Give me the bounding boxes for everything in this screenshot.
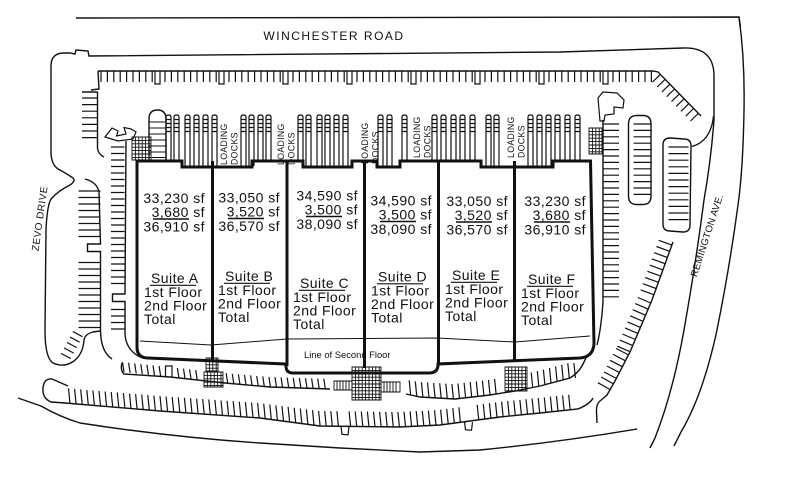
svg-text:LOADING: LOADING xyxy=(412,116,422,158)
svg-text:36,570 sf: 36,570 sf xyxy=(218,218,280,234)
svg-text:DOCKS: DOCKS xyxy=(371,131,381,164)
svg-text:Total: Total xyxy=(218,309,250,325)
svg-text:DOCKS: DOCKS xyxy=(287,132,297,165)
svg-text:Total: Total xyxy=(293,316,325,332)
svg-text:LOADING: LOADING xyxy=(276,123,286,165)
svg-text:DOCKS: DOCKS xyxy=(517,125,527,158)
svg-text:DOCKS: DOCKS xyxy=(230,132,240,165)
svg-text:WINCHESTER ROAD: WINCHESTER ROAD xyxy=(263,29,404,43)
svg-text:Total: Total xyxy=(521,312,553,328)
svg-text:38,090 sf: 38,090 sf xyxy=(296,216,358,232)
svg-text:REMINGTON AVE.: REMINGTON AVE. xyxy=(689,193,726,278)
svg-text:Total: Total xyxy=(371,310,403,326)
svg-text:36,910 sf: 36,910 sf xyxy=(524,221,586,237)
svg-text:LOADING: LOADING xyxy=(506,116,516,158)
svg-text:36,910 sf: 36,910 sf xyxy=(143,218,205,234)
svg-text:Line of Second Floor: Line of Second Floor xyxy=(304,349,391,360)
svg-text:LOADING: LOADING xyxy=(360,122,370,164)
svg-text:Total: Total xyxy=(445,308,477,324)
svg-text:38,090 sf: 38,090 sf xyxy=(370,221,432,237)
svg-text:ZEVO DRIVE: ZEVO DRIVE xyxy=(31,185,51,251)
svg-text:Total: Total xyxy=(144,311,176,327)
svg-text:LOADING: LOADING xyxy=(219,123,229,165)
svg-text:DOCKS: DOCKS xyxy=(423,125,433,158)
svg-text:36,570 sf: 36,570 sf xyxy=(446,221,508,237)
